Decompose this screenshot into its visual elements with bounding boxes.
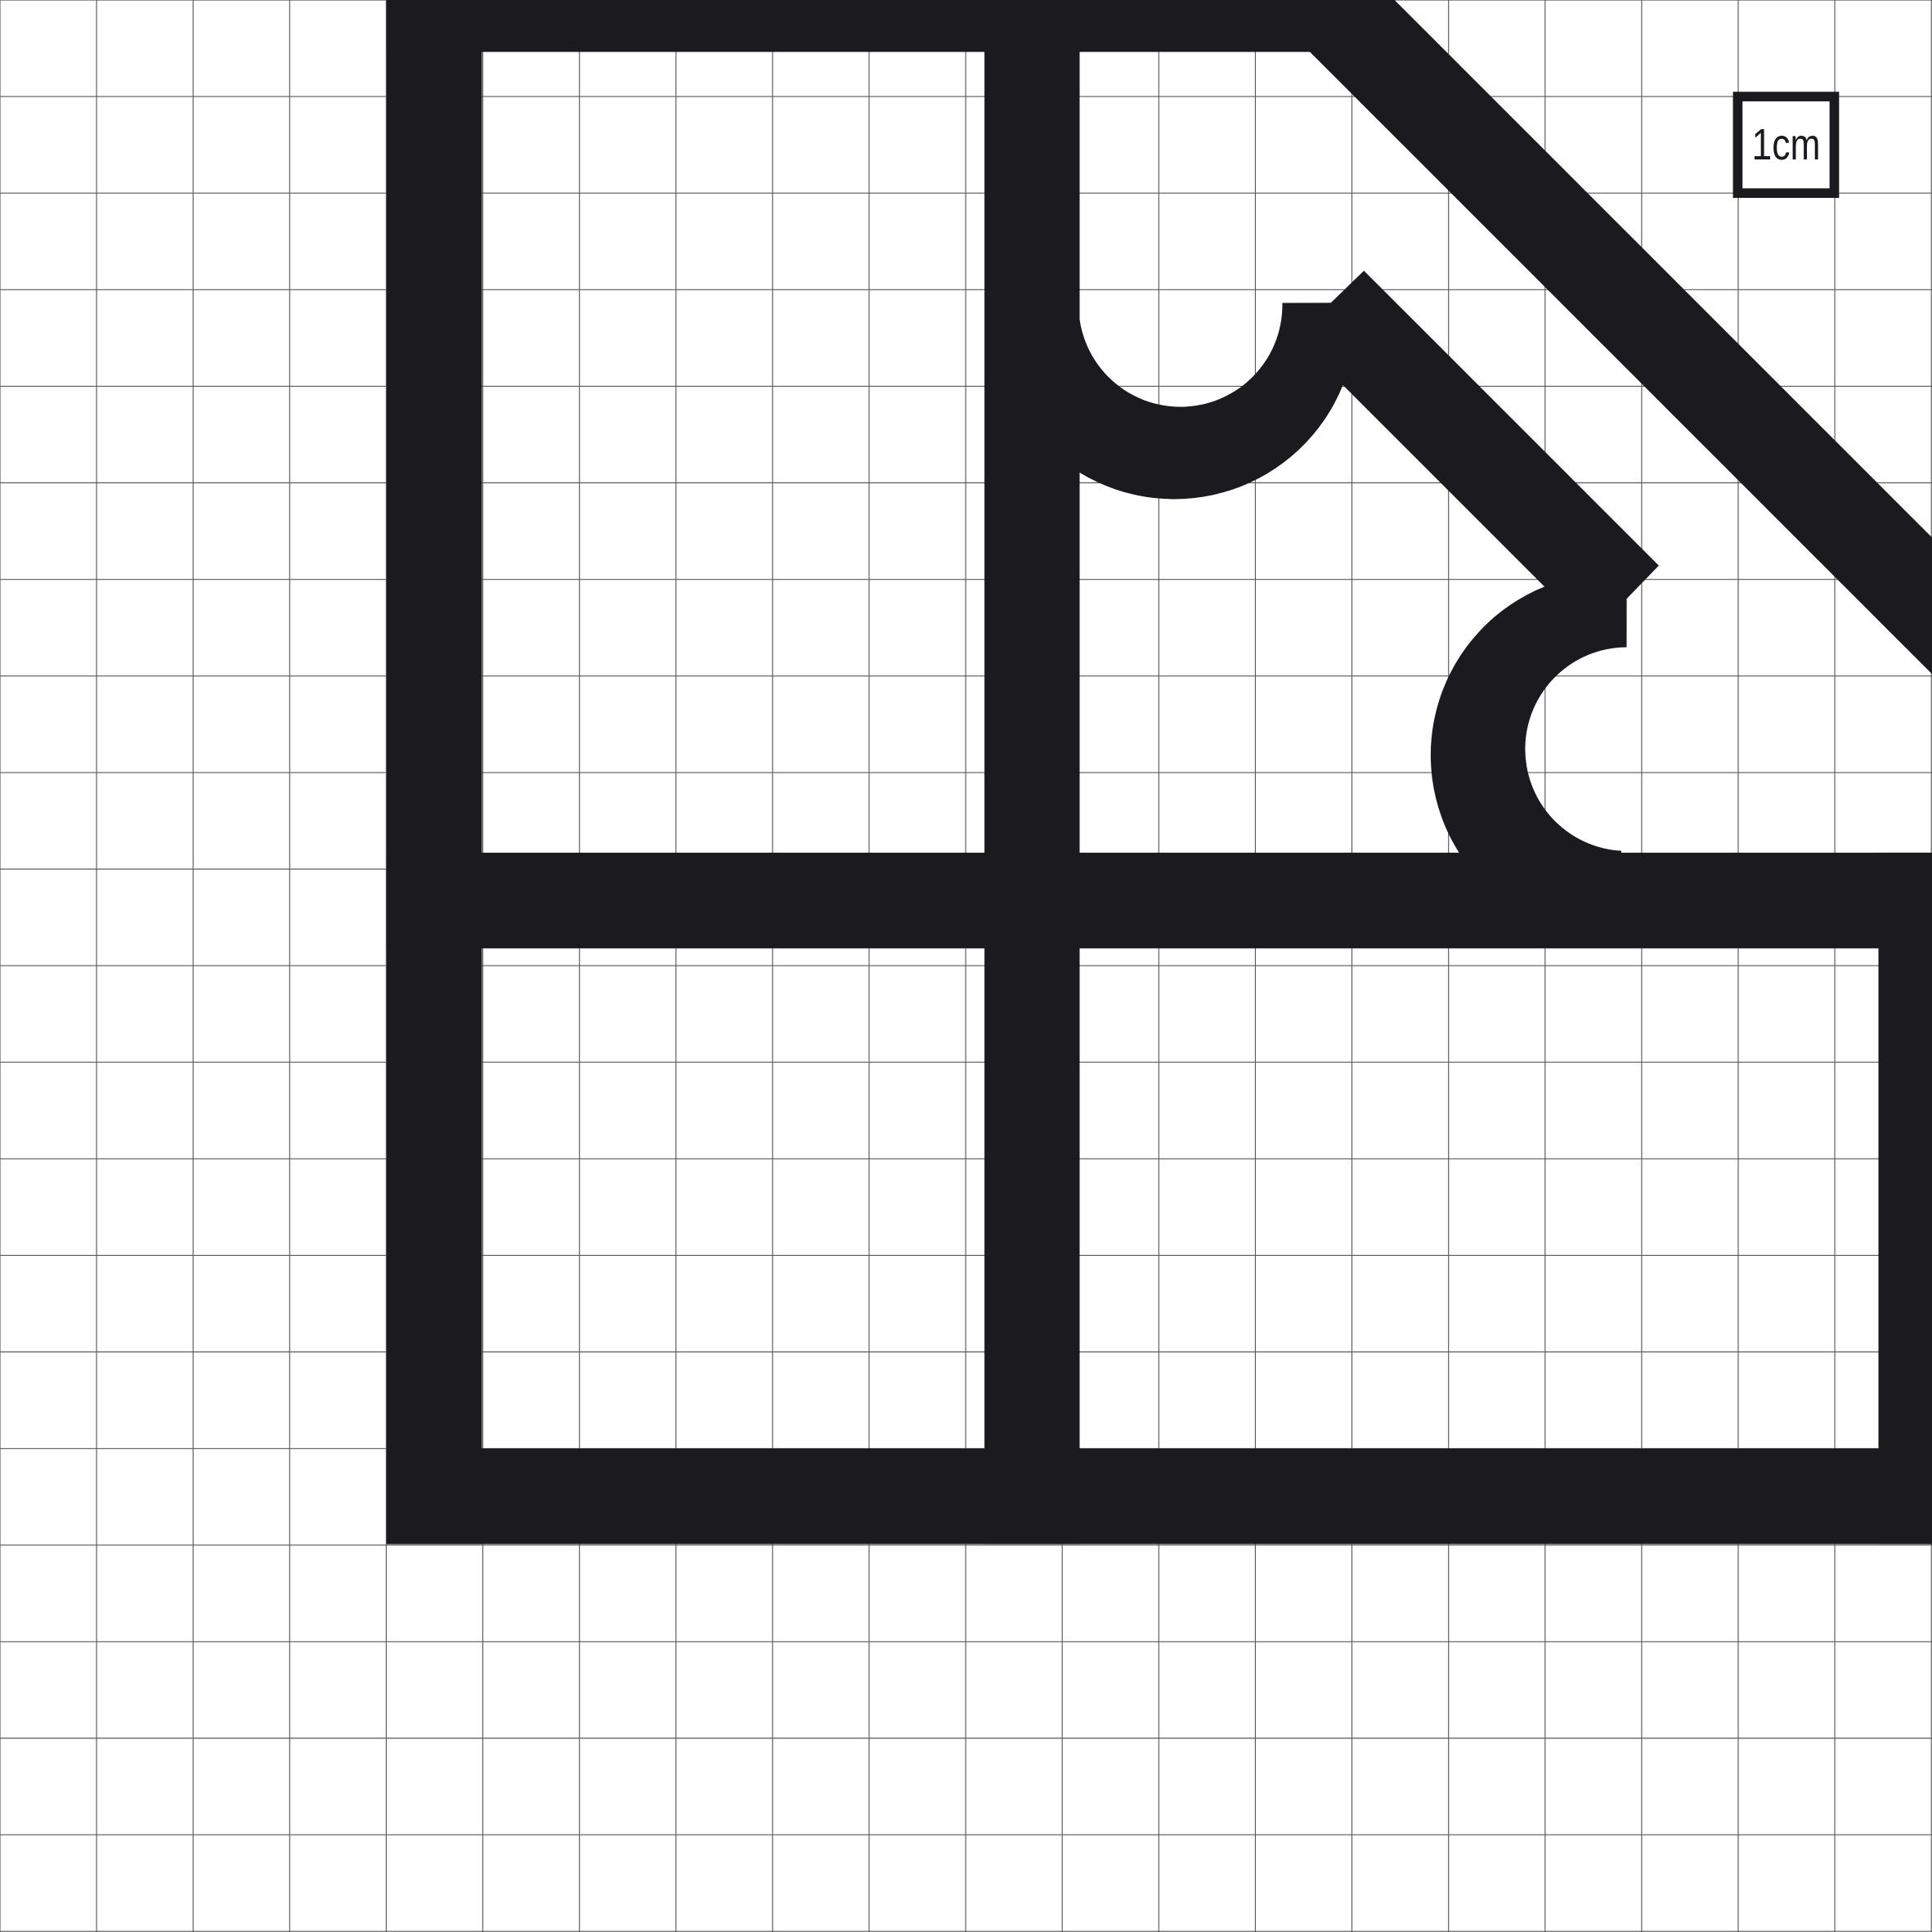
svg-text:1cm: 1cm: [1752, 120, 1821, 169]
